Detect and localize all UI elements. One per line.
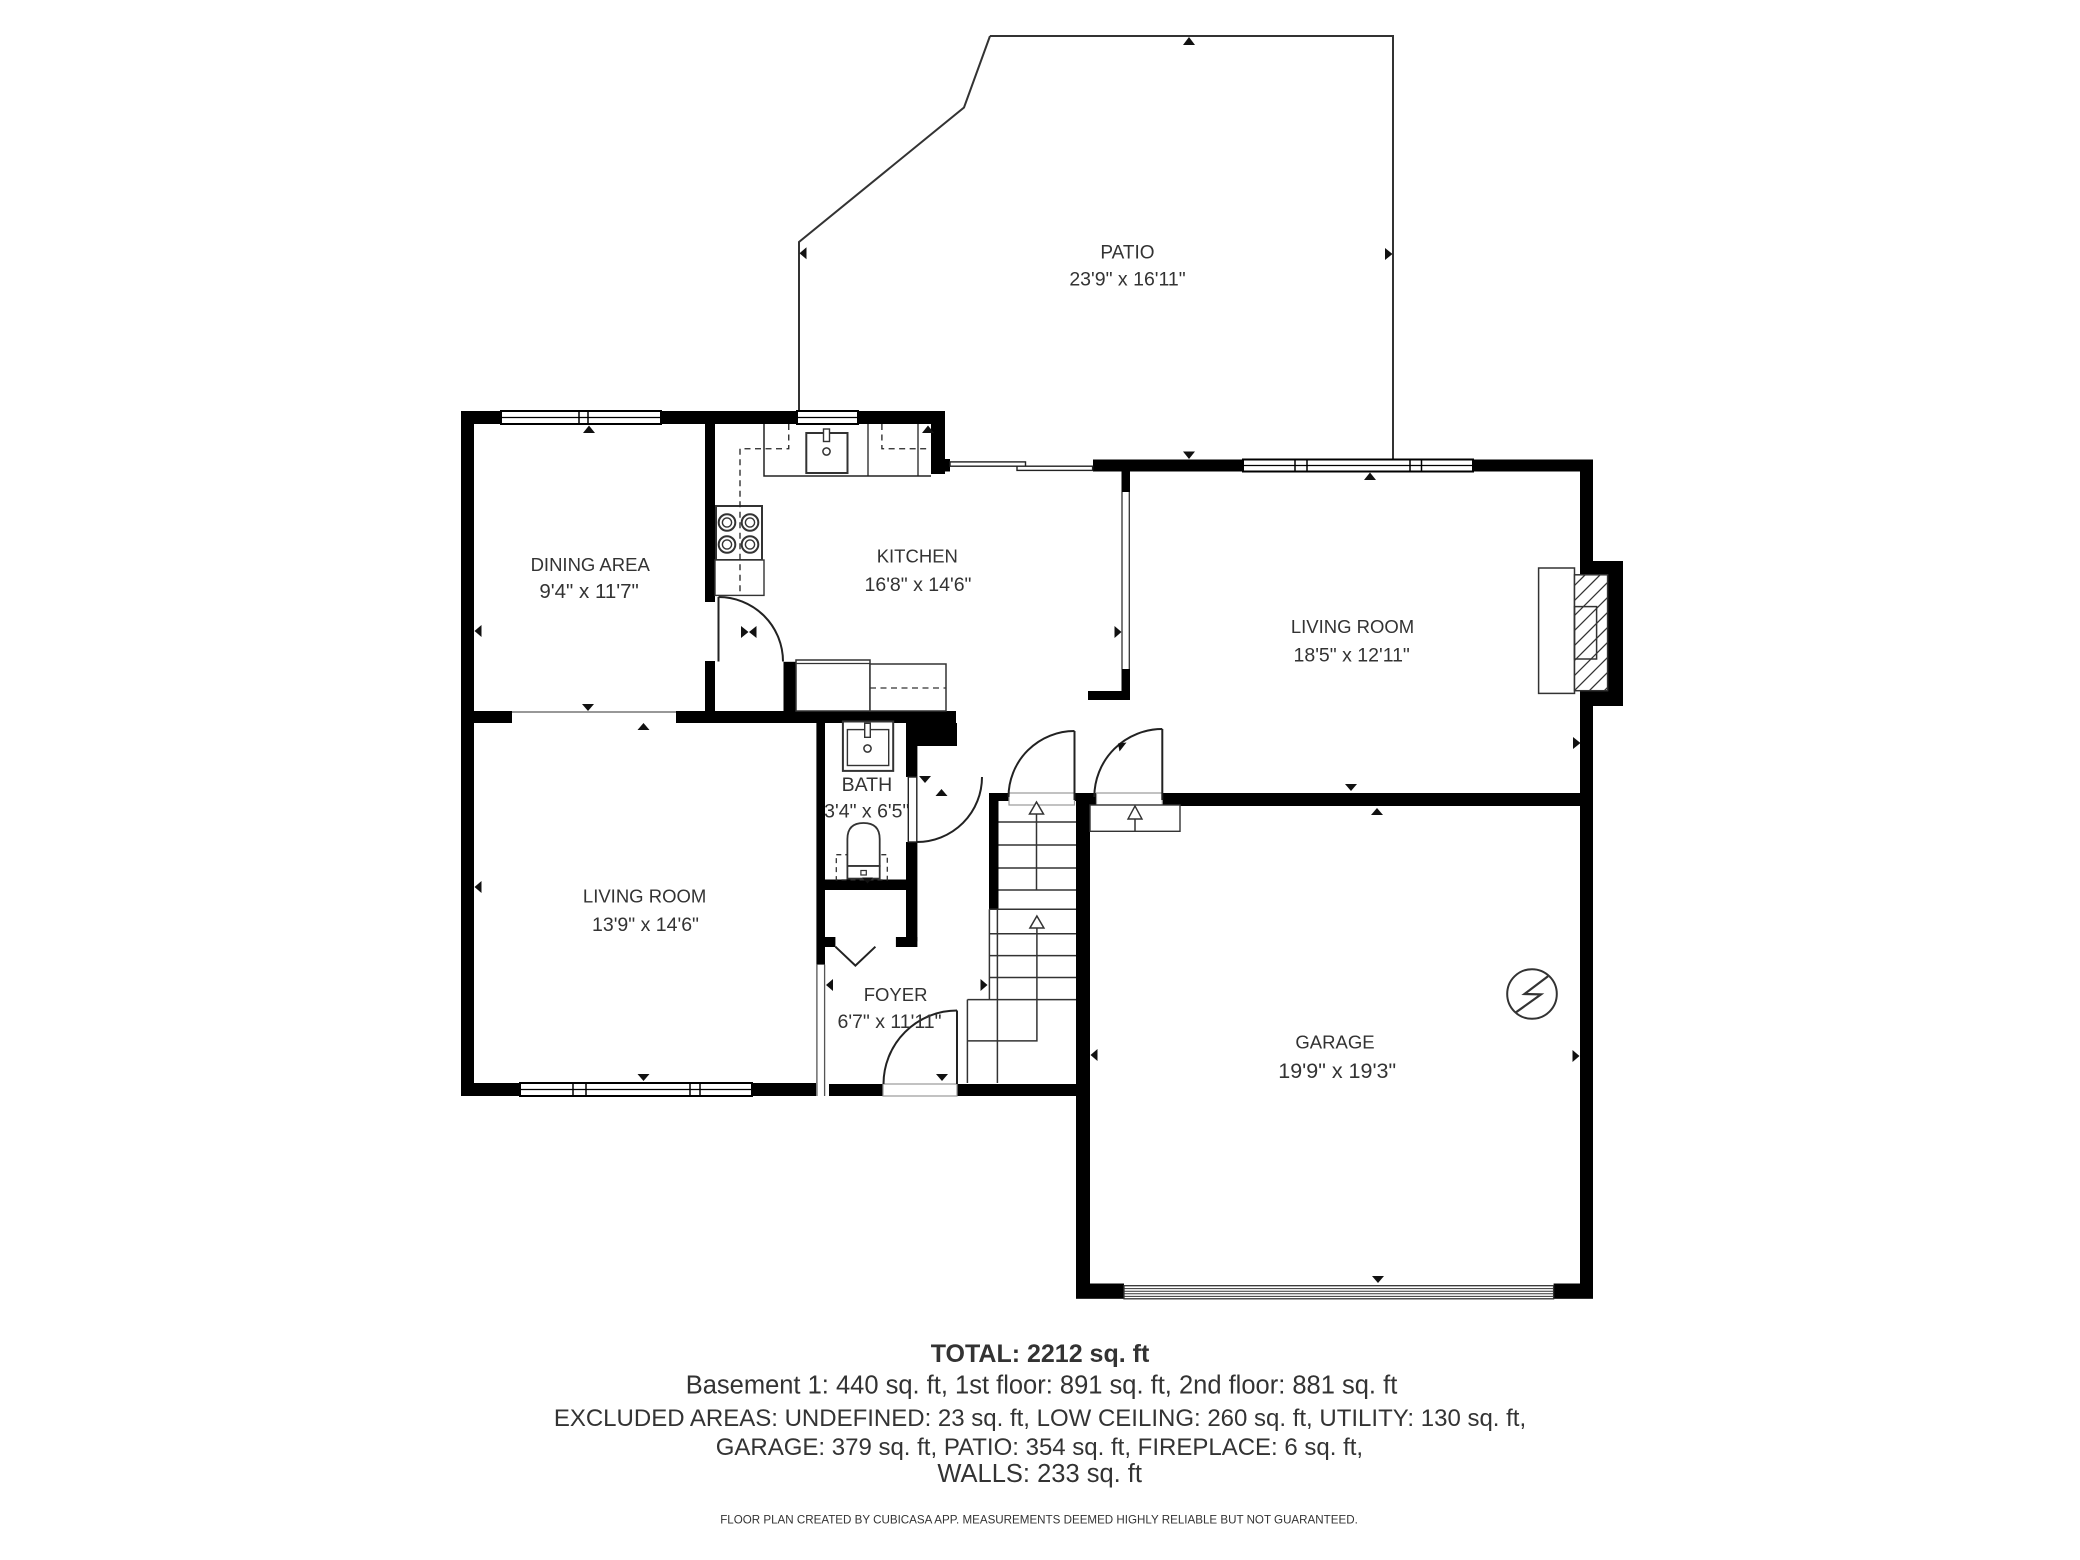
svg-text:GARAGE: 379 sq. ft, PATIO: 354: GARAGE: 379 sq. ft, PATIO: 354 sq. ft, F…	[716, 1434, 1363, 1461]
svg-text:13'9" x 14'6": 13'9" x 14'6"	[592, 914, 699, 936]
svg-text:19'9" x 19'3": 19'9" x 19'3"	[1278, 1059, 1396, 1083]
svg-text:3'4" x 6'5": 3'4" x 6'5"	[824, 800, 909, 822]
svg-text:9'4" x 11'7": 9'4" x 11'7"	[539, 580, 639, 603]
svg-text:18'5" x 12'11": 18'5" x 12'11"	[1294, 644, 1410, 666]
svg-text:6'7" x 11'11": 6'7" x 11'11"	[837, 1011, 941, 1033]
svg-text:FOYER: FOYER	[864, 984, 928, 1005]
svg-text:LIVING ROOM: LIVING ROOM	[1291, 616, 1414, 637]
svg-text:GARAGE: GARAGE	[1295, 1032, 1374, 1053]
svg-text:EXCLUDED AREAS: UNDEFINED: 23: EXCLUDED AREAS: UNDEFINED: 23 sq. ft, LO…	[554, 1405, 1526, 1432]
svg-text:TOTAL: 2212 sq. ft: TOTAL: 2212 sq. ft	[931, 1340, 1150, 1368]
svg-text:FLOOR PLAN CREATED BY CUBICASA: FLOOR PLAN CREATED BY CUBICASA APP. MEAS…	[720, 1514, 1358, 1527]
svg-text:BATH: BATH	[842, 774, 893, 796]
svg-text:PATIO: PATIO	[1100, 243, 1154, 264]
svg-text:KITCHEN: KITCHEN	[877, 545, 958, 566]
svg-text:LIVING ROOM: LIVING ROOM	[583, 886, 706, 907]
svg-text:23'9" x 16'11": 23'9" x 16'11"	[1069, 269, 1185, 291]
svg-text:DINING AREA: DINING AREA	[531, 554, 651, 575]
svg-text:16'8" x 14'6": 16'8" x 14'6"	[865, 574, 972, 596]
svg-text:Basement 1: 440 sq. ft, 1st fl: Basement 1: 440 sq. ft, 1st floor: 891 s…	[686, 1372, 1398, 1400]
svg-text:WALLS: 233 sq. ft: WALLS: 233 sq. ft	[937, 1460, 1142, 1488]
